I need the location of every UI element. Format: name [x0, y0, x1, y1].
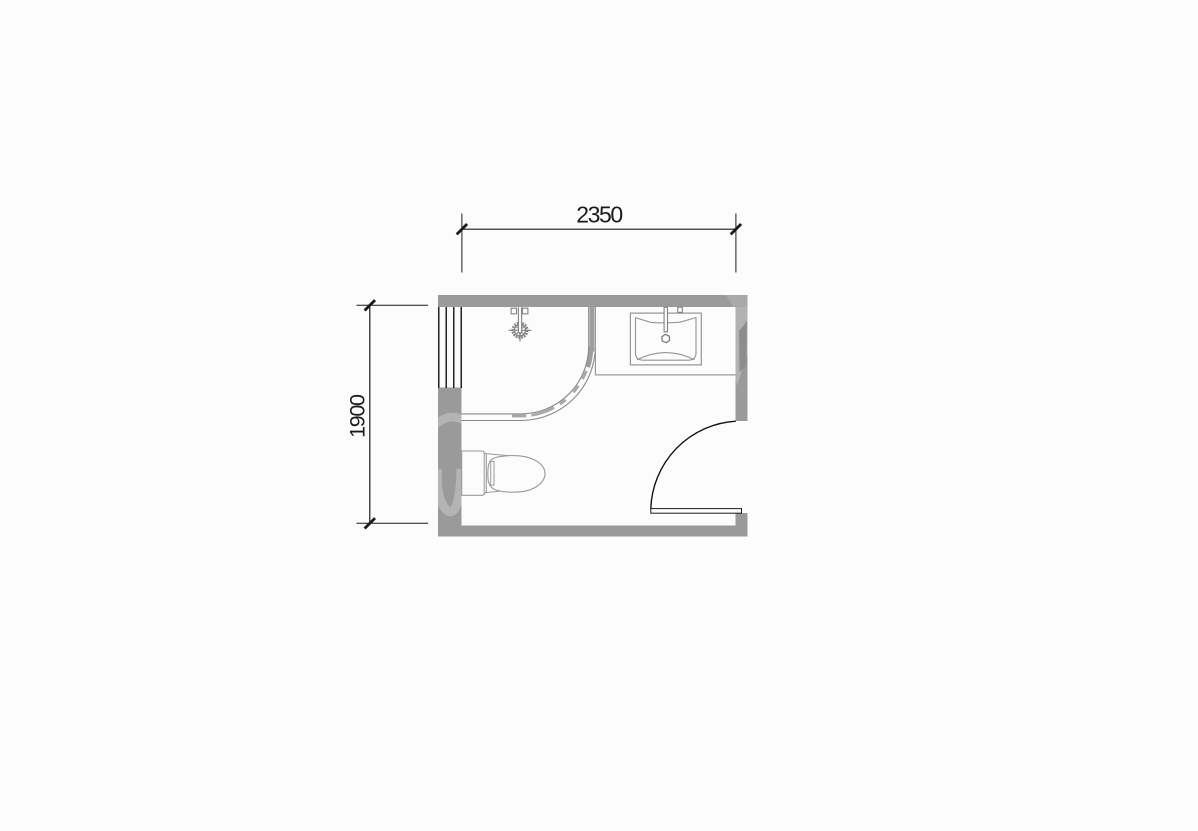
- svg-text:1900: 1900: [346, 394, 370, 438]
- svg-text:2350: 2350: [576, 202, 622, 228]
